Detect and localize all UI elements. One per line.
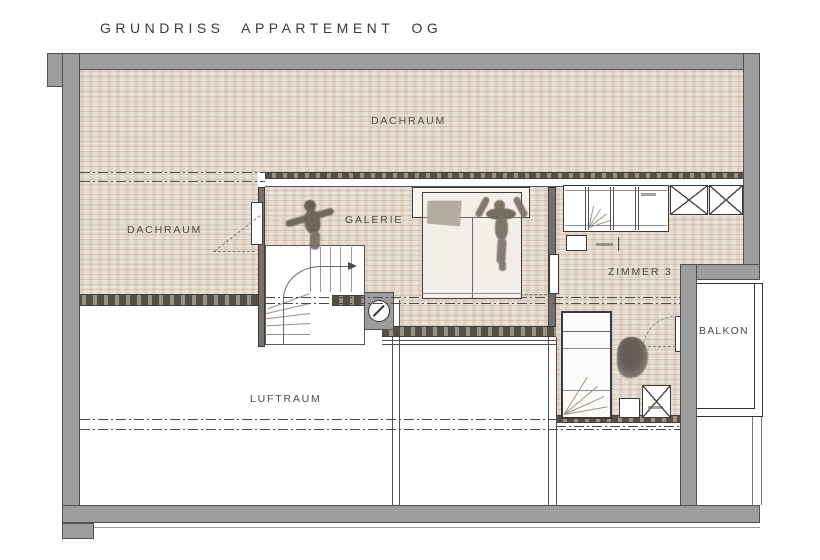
wall-east-lower: [680, 264, 697, 510]
door-leaf-zimmer3: [549, 254, 559, 294]
tiny-annotation: [596, 243, 613, 246]
zimmer3-bed-line: [563, 390, 610, 391]
stair-walk-line: [283, 298, 284, 344]
roof-line-mid-2: [265, 303, 680, 304]
stair-walk-line: [319, 266, 349, 267]
room-label-zimmer3: ZIMMER 3: [608, 266, 673, 278]
room-label-galerie: GALERIE: [345, 214, 403, 226]
roof-line-left-2: [80, 181, 265, 182]
dimension-tick: [618, 237, 619, 251]
galerie-railing-line-1: [382, 340, 556, 341]
wardrobe-divider: [585, 187, 586, 230]
zimmer3-bed-line: [563, 331, 610, 332]
wardrobe-divider: [613, 187, 614, 230]
tiny-annotation: [641, 193, 656, 196]
luftraum-top-band: [75, 294, 258, 306]
room-label-dachraum-top: DACHRAUM: [371, 115, 446, 127]
galerie-bed-center-line: [472, 218, 473, 298]
wall-south-ledge: [94, 527, 760, 528]
wall-south: [62, 505, 760, 523]
roof-line-left-1: [80, 172, 265, 173]
roof-line-low-1: [80, 419, 556, 420]
door-leaf-dachraum: [251, 202, 263, 245]
stool: [619, 398, 640, 418]
kneewall-band-north: [265, 172, 743, 179]
shaft-marker-icon: [642, 385, 671, 418]
galerie-bed-foot-line: [422, 293, 522, 294]
balkon-railing-inner: [688, 283, 755, 409]
wardrobe-divider: [610, 187, 611, 230]
stair-winder-tread: [265, 334, 310, 335]
room-label-balkon: BALKON: [699, 325, 749, 337]
galerie-railing-band: [382, 326, 556, 337]
stair-tread: [340, 247, 341, 292]
door-swing-balkon-chord: [643, 346, 676, 347]
floor-plan-canvas: GRUNDRISS APPARTEMENT OG: [0, 0, 820, 560]
roof-line-low-2: [80, 429, 680, 430]
shaft-marker-icon: [670, 185, 708, 215]
wardrobe-divider: [638, 187, 639, 230]
stair-direction-arrow-icon: [348, 262, 357, 270]
person-lying-figure: [476, 190, 528, 272]
nightstand: [566, 235, 587, 251]
door-swing-dachraum-chord: [213, 251, 255, 252]
galerie-railing-line-2: [382, 344, 556, 345]
roof-line-low-3: [556, 426, 680, 427]
stair-tread: [330, 247, 331, 292]
room-label-dachraum-left: DACHRAUM: [127, 224, 202, 236]
edge-below-balkon: [752, 417, 762, 505]
tiny-annotation: [648, 406, 663, 409]
shaft-marker-icon: [709, 185, 743, 215]
wall-east-upper: [743, 53, 760, 280]
wardrobe-divider: [635, 187, 636, 230]
wardrobe-frame-line: [565, 225, 667, 226]
wall-north-west-notch: [47, 53, 63, 87]
page-title: GRUNDRISS APPARTEMENT OG: [100, 20, 442, 36]
wall-west: [62, 53, 80, 539]
wall-midroom-east: [548, 337, 557, 505]
room-label-luftraum: LUFTRAUM: [250, 393, 322, 405]
wall-south-west-foot: [62, 523, 94, 539]
person-standing-figure: [279, 185, 341, 256]
void-room-middle: [400, 345, 548, 505]
wall-north: [47, 53, 760, 70]
void-room-right: [557, 423, 680, 505]
zimmer3-bed-line: [563, 348, 610, 349]
wardrobe-frame-line: [565, 190, 667, 191]
